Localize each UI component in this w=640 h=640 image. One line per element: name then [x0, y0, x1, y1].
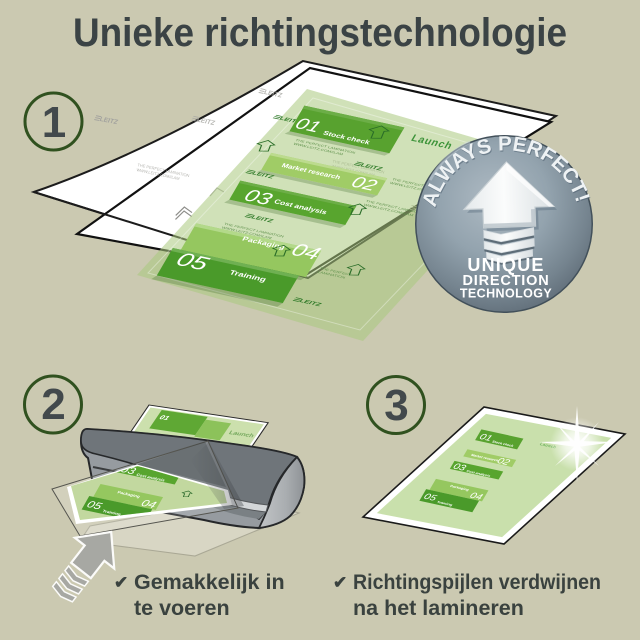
svg-text:te voeren: te voeren [134, 596, 230, 620]
svg-text:✔: ✔ [114, 573, 128, 592]
svg-text:Richtingspijlen verdwijnen: Richtingspijlen verdwijnen [353, 570, 601, 594]
svg-text:1: 1 [42, 98, 66, 147]
svg-text:✔: ✔ [333, 573, 347, 592]
svg-text:Unieke richtingstechnologie: Unieke richtingstechnologie [73, 11, 567, 55]
svg-text:2: 2 [41, 380, 65, 429]
svg-text:3: 3 [384, 381, 408, 430]
svg-text:Gemakkelijk in: Gemakkelijk in [134, 570, 285, 594]
svg-text:UNIQUE: UNIQUE [467, 255, 544, 275]
svg-text:TECHNOLOGY: TECHNOLOGY [460, 287, 552, 301]
svg-text:na het lamineren: na het lamineren [353, 596, 524, 620]
